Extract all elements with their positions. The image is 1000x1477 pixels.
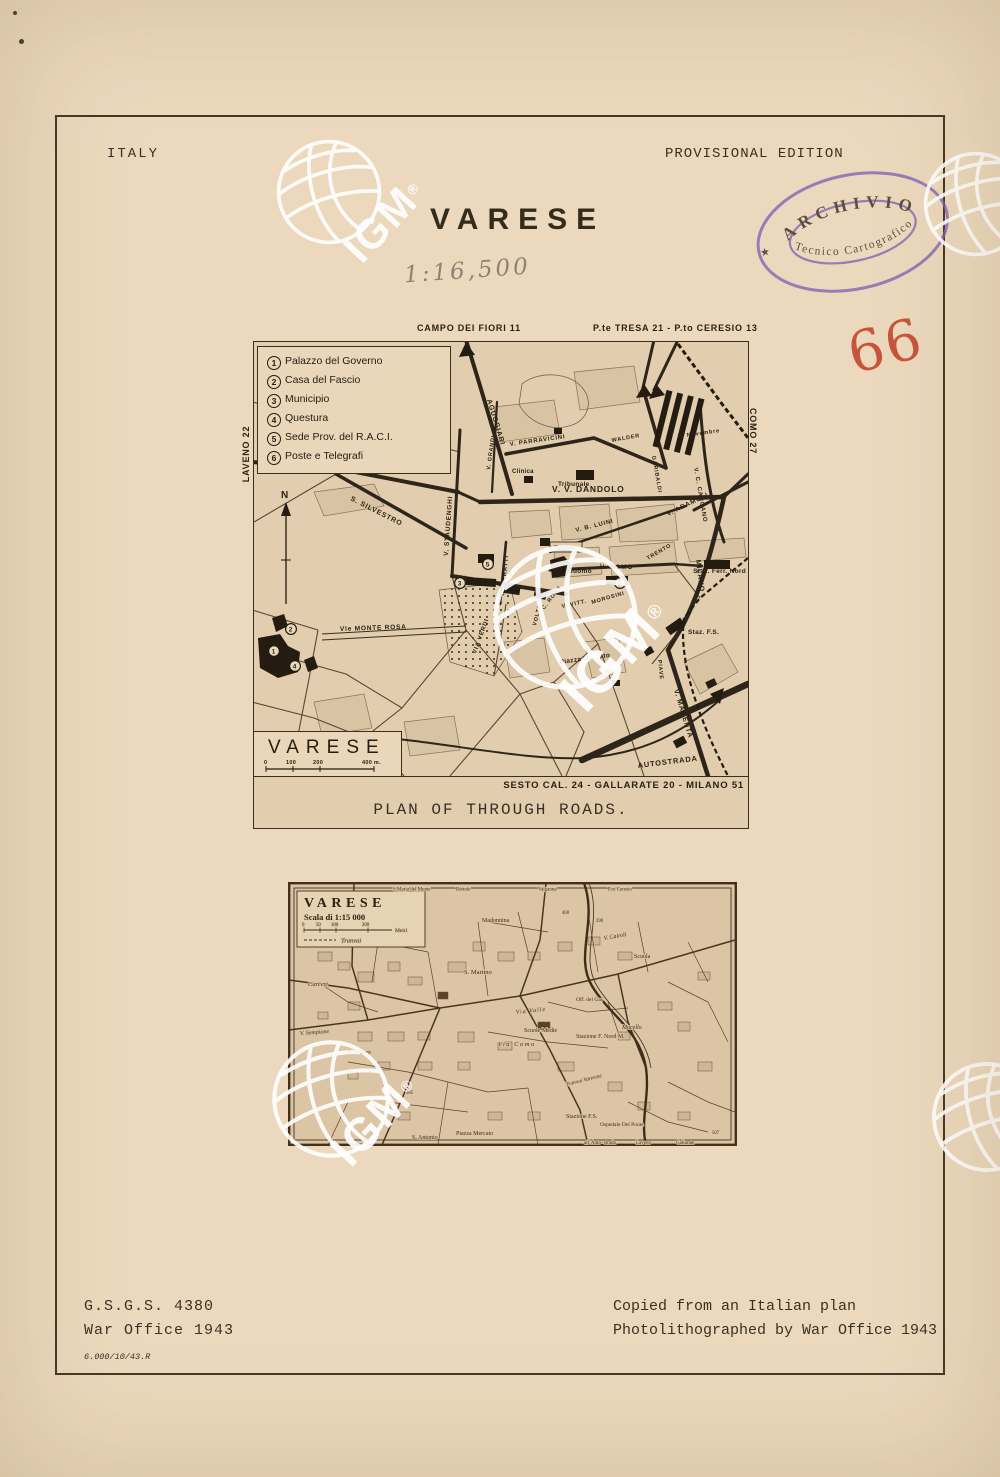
place-label: Teatro [554,545,575,552]
legend-item: 1Palazzo del Governo [267,355,382,371]
legend-label: Casa del Fascio [285,374,360,386]
marker-1: 1 [272,649,276,656]
place-label: Stazione F. Nord M. [576,1034,625,1040]
legend-marker-1: 1 [267,356,281,370]
legend-label: Sede Prov. del R.A.C.I. [285,431,393,443]
map1-legend: 1Palazzo del Governo 2Casa del Fascio 3M… [257,346,451,474]
street-label: AUTOSTRADA [637,754,698,770]
scan-speck [19,39,24,44]
place-label: S. Martino [464,969,492,976]
street-label: Vle MONTE ROSA [340,624,407,633]
marker-5: 5 [486,562,490,569]
place-label: Off. del Gas [576,996,603,1003]
map2-scale-text: Scala di 1:15 000 [304,912,365,922]
place-label: Ospedale Del Ponte [600,1122,644,1128]
credit-line-2: Photolithographed by War Office 1943 [613,1322,937,1339]
map1-title-box: VARESE 0 100 200 400 m. [253,731,402,777]
scanned-map-sheet: ITALY PROVISIONAL EDITION VARESE 1:16,50… [0,0,1000,1477]
map1-caption-divider [254,776,748,777]
place-label: Clinica [512,469,534,475]
plan-of-through-roads-map: N AGUGGIARI V. PARRAVICINI V. V. DANDOLO… [253,341,749,829]
edge-label: Laveno [636,1141,651,1146]
scale-tick: 200 [313,760,323,766]
map2-title-box: VARESE Scala di 1:15 000 0 50 100 200 Me… [297,891,425,947]
legend-marker-4: 4 [267,413,281,427]
map1-edge-top-left: CAMPO DEI FIORI 11 [417,323,521,333]
scale-tick: 400 m. [362,760,381,766]
marker-2: 2 [289,627,293,634]
place-label: Stazione F.S. [566,1114,598,1120]
italian-town-plan-map: VARESE Scala di 1:15 000 0 50 100 200 Me… [288,882,737,1146]
place-label: Madonnina [482,918,510,924]
svg-text:N: N [281,490,289,501]
map1-edge-bottom-distances: SESTO CAL. 24 - GALLARATE 20 - MILANO 51 [503,780,744,791]
scale-unit: Metri [395,928,408,934]
compass-icon: N [281,490,291,604]
legend-item: 4Questura [267,412,328,428]
place-label: Duomo [568,568,592,575]
sheet-title: VARESE [430,203,605,237]
marker-3: 3 [458,581,462,588]
legend-label: Palazzo del Governo [285,355,382,367]
street-label: GARIBALDI [650,455,662,493]
publisher-line: War Office 1943 [84,1322,234,1339]
series-number: G.S.G.S. 4380 [84,1298,214,1315]
street-label: V. COMO [600,564,633,571]
map1-edge-right: COMO 27 [748,391,758,471]
map2-drawing: VARESE Scala di 1:15 000 0 50 100 200 Me… [288,882,737,1146]
legend-marker-2: 2 [267,375,281,389]
legend-item: 5Sede Prov. del R.A.C.I. [267,431,393,447]
edge-label: all' Auto- strada [584,1141,617,1146]
spot-height: 385 [406,1091,414,1096]
legend-item: 6Poste e Telegrafi [267,450,363,466]
spot-height: 400 [562,911,570,916]
place-label: S. Antonio [412,1135,438,1141]
edge-label: Bèttole [456,888,471,893]
legend-marker-6: 6 [267,451,281,465]
place-label: Macello [621,1025,642,1031]
stamp-star-icon: ★ [759,246,771,260]
tram-legend: Tranvai [341,938,361,945]
place-label: Staz. Ferr. Nord [693,568,746,575]
scale-tick: 0 [264,760,267,766]
map2-title: VARESE [304,896,386,911]
country-label: ITALY [107,146,159,162]
scale-tick: 50 [316,923,321,928]
scan-speck [13,11,17,15]
scale-tick: 100 [331,923,339,928]
spot-height: 507 [712,1131,720,1136]
street-label: MILANO [694,559,705,592]
map1-scale-bar: 0 100 200 400 m. [258,757,398,774]
edition-label: PROVISIONAL EDITION [665,146,844,162]
place-label: Via Como [498,1041,536,1048]
legend-item: 3Municipio [267,393,329,409]
place-label: Staz. F.S. [688,629,719,636]
credit-line-1: Copied from an Italian plan [613,1298,856,1315]
edge-label: P.to Ceresio [608,888,632,893]
place-label: Piazza Mercato [456,1131,493,1137]
edge-label: Valganna [538,888,557,893]
print-code: 6.000/10/43.R [84,1352,150,1362]
map1-caption: PLAN OF THROUGH ROADS. [254,801,748,819]
map1-edge-left: LAVENO 22 [241,414,251,494]
legend-marker-3: 3 [267,394,281,408]
place-label: Scuola [634,954,651,960]
place-label: Scuole Medie [524,1028,557,1034]
street-label: MOROSINI [591,591,626,606]
legend-label: Questura [285,412,328,424]
legend-label: Municipio [285,393,329,405]
scale-tick: 100 [286,760,296,766]
map1-edge-top-right: P.te TRESA 21 - P.to CERESIO 13 [593,323,758,333]
marker-4: 4 [293,664,297,671]
street-label: WALDER [611,433,640,444]
spot-height: 390 [596,919,604,924]
edge-label: S.Maria del Monte [393,888,431,893]
map1-name: VARESE [268,737,386,759]
legend-label: Poste e Telegrafi [285,450,363,462]
place-label: S. Vittore [348,1050,371,1056]
place-label: Tribunale [558,481,590,488]
marker-6: 6 [618,581,622,588]
street-label: PIAVE [656,660,664,681]
edge-label: Gallarate [676,1141,695,1146]
legend-item: 2Casa del Fascio [267,374,360,390]
place-label: Carceri [308,981,328,988]
legend-marker-5: 5 [267,432,281,446]
scale-tick: 200 [362,923,370,928]
